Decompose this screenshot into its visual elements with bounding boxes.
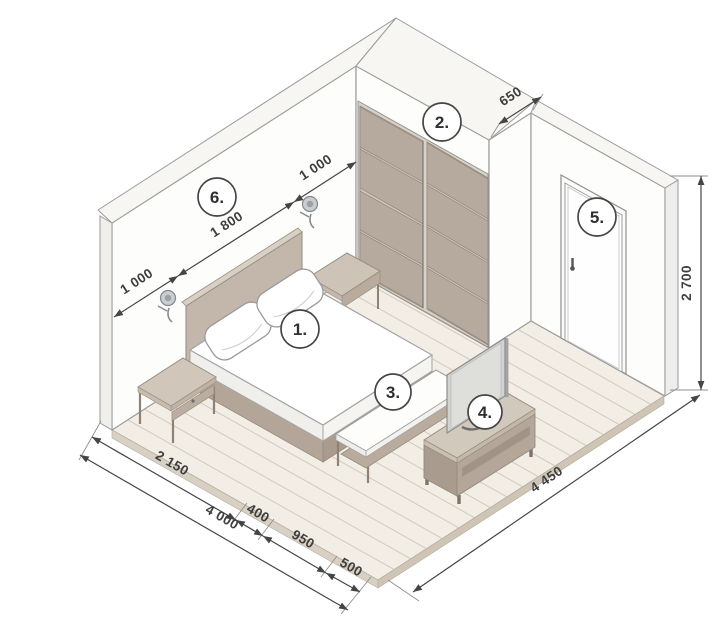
callout-door-label: 5. — [590, 208, 604, 227]
callout-bed-label: 1. — [293, 320, 307, 339]
door-wall-right-edge — [665, 180, 678, 396]
niche-step-face — [489, 113, 531, 348]
callout-bench-label: 3. — [386, 383, 400, 402]
callout-bench: 3. — [375, 374, 411, 410]
nightstand-left-knob — [191, 399, 194, 402]
callout-accent-wall-label: 6. — [210, 188, 224, 207]
callout-tv-label: 4. — [478, 403, 492, 422]
callout-wardrobe-label: 2. — [435, 113, 449, 132]
left-wall-side-edge — [100, 216, 112, 430]
diagram-canvas: 1 000 1 800 1 000 650 2 700 — [0, 0, 720, 633]
callout-tv: 4. — [468, 395, 502, 429]
callout-bed: 1. — [281, 310, 319, 348]
isometric-bedroom-diagram: 1 000 1 800 1 000 650 2 700 — [0, 0, 720, 633]
callout-door: 5. — [578, 198, 616, 236]
callout-accent-wall: 6. — [198, 178, 236, 216]
callout-wardrobe: 2. — [423, 103, 461, 141]
dim-label-height: 2 700 — [679, 265, 694, 301]
